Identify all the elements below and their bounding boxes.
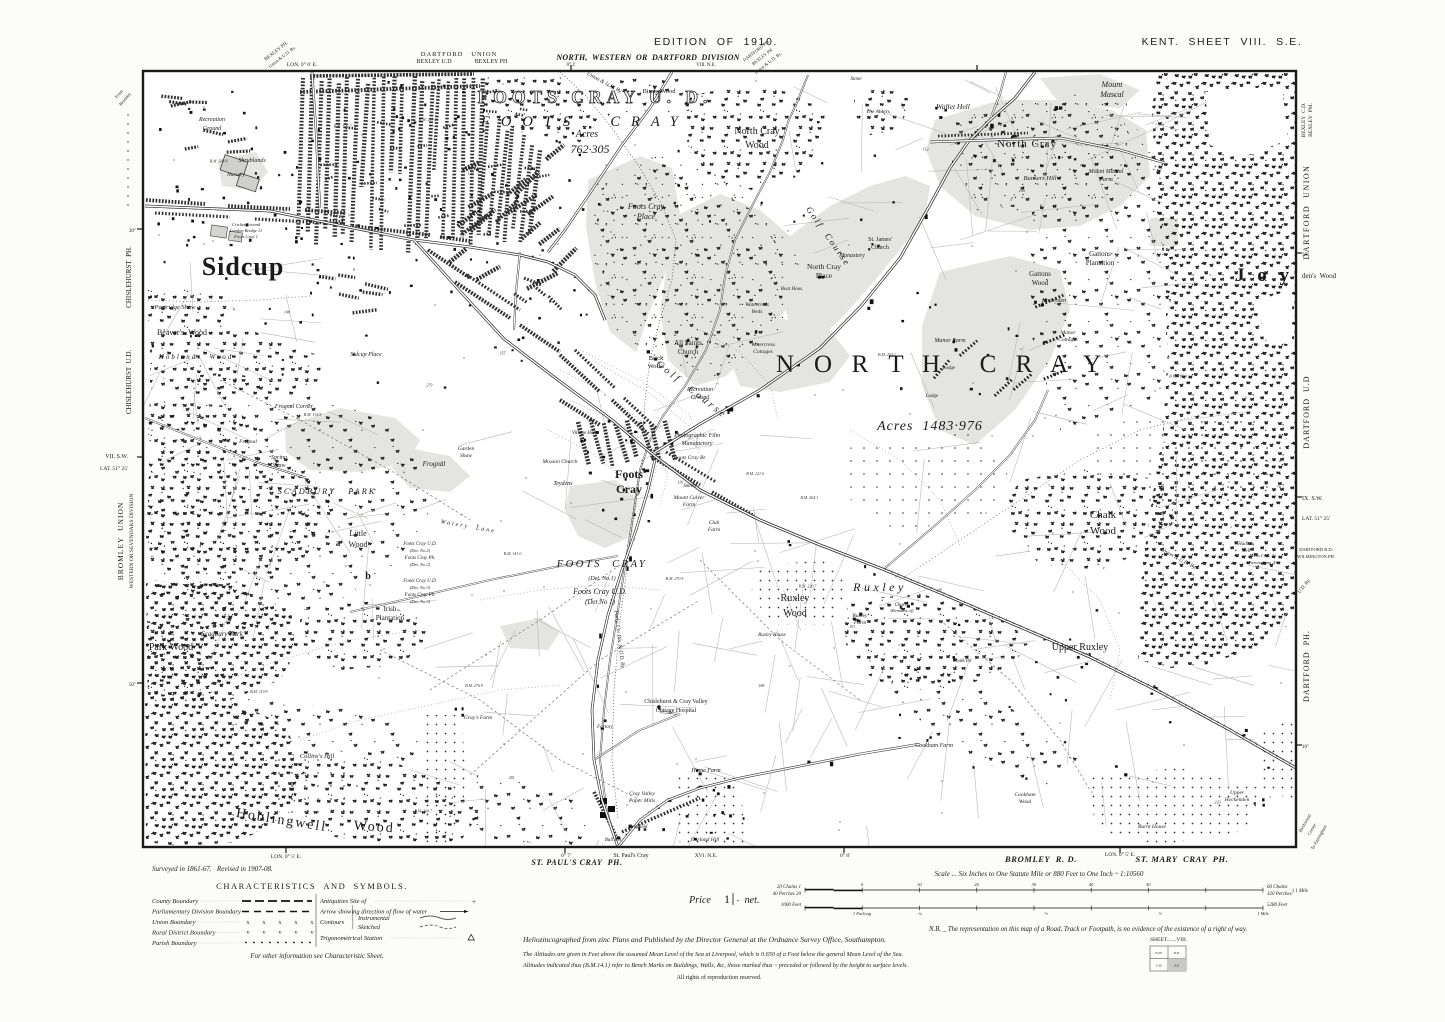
svg-text:x: x — [295, 920, 298, 926]
svg-text:Paper Mills: Paper Mills — [628, 798, 655, 804]
svg-text:Factory: Factory — [596, 725, 614, 730]
svg-text:B.M. 186·3: B.M. 186·3 — [1169, 373, 1187, 378]
svg-text:BEXLEY U.D: BEXLEY U.D — [416, 59, 452, 65]
svg-text:Y: Y — [1083, 351, 1101, 378]
svg-text:Shrublands: Shrublands — [238, 158, 266, 164]
svg-text:Boat Hous.: Boat Hous. — [781, 287, 804, 292]
svg-text:Beaver's Wood: Beaver's Wood — [157, 328, 207, 337]
svg-text:CHISLEHURST PH.: CHISLEHURST PH. — [125, 246, 133, 308]
svg-text:J o y: J o y — [1235, 265, 1293, 286]
svg-text:Brick: Brick — [649, 355, 664, 362]
svg-text:Wood: Wood — [1090, 525, 1117, 537]
svg-text:North Cray: North Cray — [734, 126, 779, 137]
svg-text:155: 155 — [499, 351, 505, 356]
svg-text:20: 20 — [974, 882, 979, 887]
svg-text:Upper: Upper — [1230, 790, 1245, 796]
svg-text:Mount: Mount — [1101, 80, 1124, 89]
svg-text:20 Chains 1: 20 Chains 1 — [777, 885, 801, 890]
svg-text:Hoblands Wood: Hoblands Wood — [158, 353, 233, 361]
svg-text:H: H — [922, 351, 940, 378]
svg-text:Instrumental: Instrumental — [357, 915, 390, 922]
svg-text:Cottages: Cottages — [753, 349, 773, 355]
svg-text:30″: 30″ — [129, 229, 136, 234]
svg-text:Stone: Stone — [850, 77, 862, 82]
svg-text:Chislehurst & Cray Valley: Chislehurst & Cray Valley — [644, 699, 707, 705]
svg-text:Foots Cray: Foots Cray — [627, 202, 665, 211]
svg-text:All rights of reproduction res: All rights of reproduction reserved. — [677, 974, 762, 981]
svg-text:Village Hall: Village Hall — [572, 431, 597, 436]
svg-text:N: N — [776, 351, 794, 378]
svg-text:Wood: Wood — [783, 608, 807, 619]
svg-text:LAT. 51° 25': LAT. 51° 25' — [100, 465, 128, 472]
svg-text:Gorland Hill: Gorland Hill — [691, 837, 720, 843]
svg-text:Farm: Farm — [682, 502, 695, 508]
svg-text:Farm: Farm — [1098, 177, 1113, 183]
svg-text:Gattons: Gattons — [1089, 250, 1111, 258]
svg-text:Upper Ruxley: Upper Ruxley — [1052, 642, 1108, 653]
svg-text:Parliamentary Division Boundar: Parliamentary Division Boundary — [151, 909, 241, 916]
svg-text:B.M. 203·1: B.M. 203·1 — [878, 352, 896, 357]
svg-text:North Cray: North Cray — [807, 262, 841, 271]
svg-text:Ground: Ground — [691, 395, 710, 401]
svg-text:Foots Cray Br.: Foots Cray Br. — [673, 455, 707, 461]
svg-text:Works: Works — [648, 363, 665, 370]
svg-text:Recreation: Recreation — [198, 117, 225, 123]
svg-text:Manufactory: Manufactory — [681, 440, 713, 447]
svg-text:B.M. 270·5: B.M. 270·5 — [666, 576, 684, 581]
svg-text:Irish: Irish — [384, 605, 397, 613]
svg-text:Nursery: Nursery — [226, 172, 245, 178]
svg-text:FOOTS CRAY: FOOTS CRAY — [480, 114, 689, 130]
svg-text:The Alders: The Alders — [866, 109, 890, 115]
svg-text:B.M. 141·0: B.M. 141·0 — [504, 551, 522, 556]
svg-text:Honeyden: Honeyden — [1041, 298, 1066, 304]
svg-text:CHARACTERISTICS AND SYMBOLS.: CHARACTERISTICS AND SYMBOLS. — [216, 881, 408, 891]
svg-text:Birch Wood: Birch Wood — [642, 88, 676, 95]
svg-text:Price: Price — [688, 895, 711, 906]
svg-text:C: C — [980, 351, 997, 378]
svg-text:Monastery: Monastery — [838, 253, 865, 259]
svg-text:0° 8': 0° 8' — [840, 852, 850, 859]
svg-text:116: 116 — [677, 479, 683, 484]
svg-text:89: 89 — [938, 588, 942, 593]
svg-text:Heliozincographed from zinc Pl: Heliozincographed from zinc Plans and Pu… — [522, 935, 886, 944]
svg-text:VIII. N.E.: VIII. N.E. — [696, 63, 715, 68]
svg-text:Lodge: Lodge — [925, 394, 939, 399]
svg-text:b: b — [365, 571, 371, 582]
svg-text:40: 40 — [1089, 882, 1094, 887]
svg-text:v: v — [263, 930, 266, 936]
svg-text:200: 200 — [1019, 188, 1025, 193]
svg-text:x: x — [279, 920, 282, 926]
svg-text:DARTFORD UNION: DARTFORD UNION — [421, 51, 497, 58]
svg-text:BEXLEY PH: BEXLEY PH — [475, 59, 508, 65]
svg-text:den's Wood: den's Wood — [1302, 272, 1337, 280]
svg-text:x: x — [311, 920, 314, 926]
svg-text:B.M. 195·7: B.M. 195·7 — [334, 124, 353, 129]
svg-text:NORTH, WESTERN OR DARTFORD: NORTH, WESTERN OR DARTFORD DIVISION — [555, 53, 740, 62]
svg-text:Park Wood: Park Wood — [149, 642, 193, 653]
svg-text:All Saints: All Saints — [674, 339, 702, 347]
svg-text:50″: 50″ — [129, 683, 136, 688]
svg-text:v: v — [295, 930, 298, 936]
svg-text:County Boundary: County Boundary — [152, 898, 198, 905]
svg-text:1 Mile: 1 Mile — [1257, 911, 1269, 916]
svg-text:Burnt House: Burnt House — [1138, 824, 1167, 830]
svg-text:Union Boundary: Union Boundary — [152, 919, 196, 926]
svg-text:B.M. 220·7: B.M. 220·7 — [799, 584, 818, 589]
svg-text:SCADBURY PARK: SCADBURY PARK — [278, 486, 377, 496]
svg-text:Spring: Spring — [271, 455, 287, 461]
svg-text:DARTFORD UNION: DARTFORD UNION — [1302, 165, 1311, 260]
svg-text:112: 112 — [923, 146, 929, 151]
svg-text:v: v — [247, 930, 250, 936]
svg-text:Church: Church — [871, 245, 889, 251]
svg-text:SHEET.......VIII.: SHEET.......VIII. — [1150, 937, 1188, 943]
svg-text:Mount Mascal: Mount Mascal — [1088, 169, 1124, 175]
svg-text:London Bridge 11: London Bridge 11 — [229, 228, 262, 233]
svg-text:BEXLEY C.D.: BEXLEY C.D. — [1301, 102, 1307, 137]
svg-text:ST. MARY CRAY PH.: ST. MARY CRAY PH. — [1136, 854, 1229, 864]
svg-text:Ruxley House: Ruxley House — [757, 633, 786, 638]
svg-text:Bunkers Hill: Bunkers Hill — [1023, 175, 1056, 182]
svg-text:Cottages: Cottages — [1058, 337, 1078, 343]
svg-text:XVI. N.E.: XVI. N.E. — [695, 853, 718, 859]
svg-text:Wood: Wood — [1019, 799, 1032, 805]
svg-text:(Det. No.3): (Det. No.3) — [410, 599, 431, 604]
svg-text:Bull Inn: Bull Inn — [605, 838, 622, 843]
svg-text:0° 2': 0° 2' — [567, 63, 576, 68]
svg-text:Rural District Boundary: Rural District Boundary — [151, 930, 216, 937]
svg-text:Crayfield: Crayfield — [629, 825, 648, 830]
svg-text:281: 281 — [509, 775, 515, 780]
svg-text:Mission Church: Mission Church — [541, 459, 577, 465]
svg-text:S.E.: S.E. — [1174, 964, 1180, 968]
svg-text:(Det. No.1): (Det. No.1) — [588, 575, 615, 582]
svg-text:v: v — [311, 930, 314, 936]
svg-text:Place: Place — [636, 212, 656, 221]
svg-text:Foots Cray Ph.: Foots Cray Ph. — [404, 556, 436, 561]
svg-text:O: O — [814, 351, 832, 378]
svg-text:FOOTS CRAY: FOOTS CRAY — [556, 559, 648, 570]
svg-text:Acres: Acres — [575, 129, 599, 140]
svg-text:S.W.: S.W. — [1156, 964, 1163, 968]
svg-text:B.M. 264·1: B.M. 264·1 — [800, 495, 818, 500]
svg-text:320 Perches: 320 Perches — [1267, 892, 1292, 897]
svg-text:Teydens: Teydens — [553, 481, 573, 487]
svg-text:Parish Boundary: Parish Boundary — [151, 940, 197, 947]
svg-text:130: 130 — [468, 171, 474, 176]
svg-text:(Det. No.2): (Det. No.2) — [410, 548, 431, 553]
svg-text:Frognal: Frognal — [238, 439, 257, 445]
svg-text:WESTERN OR SEVENOAKS DIVISION: WESTERN OR SEVENOAKS DIVISION — [129, 494, 135, 589]
svg-text:R: R — [852, 351, 869, 378]
svg-text:Sketched: Sketched — [358, 924, 381, 931]
svg-text:LAT. 51° 25': LAT. 51° 25' — [1302, 515, 1330, 522]
svg-text:Farm: Farm — [707, 527, 720, 533]
svg-text:10: 10 — [917, 882, 922, 887]
svg-text:Ground: Ground — [203, 126, 222, 132]
svg-text:x: x — [263, 920, 266, 926]
svg-text:B.M. 208·7: B.M. 208·7 — [414, 809, 433, 814]
svg-text:v: v — [279, 930, 282, 936]
svg-text:x: x — [247, 920, 250, 926]
svg-text:Surveyed in 1861-67. Revised: Surveyed in 1861-67. Revised in 1907-08. — [152, 865, 273, 873]
svg-text:Place: Place — [816, 271, 833, 280]
svg-text:Foots Cray U.D.: Foots Cray U.D. — [572, 587, 627, 596]
svg-text:B.M. 134·8: B.M. 134·8 — [304, 412, 322, 417]
svg-text:188: 188 — [758, 683, 764, 688]
svg-text:Partridge Shaw: Partridge Shaw — [154, 304, 197, 311]
svg-text:Cookham: Cookham — [1014, 792, 1035, 798]
svg-text:10″: 10″ — [1302, 745, 1309, 750]
svg-text:Gray's Farm: Gray's Farm — [464, 715, 492, 721]
svg-text:A: A — [1050, 351, 1068, 378]
svg-text:Gattons: Gattons — [1029, 270, 1051, 278]
svg-text:Garden: Garden — [458, 446, 475, 452]
svg-text:Antiquities Site of: Antiquities Site of — [319, 898, 367, 905]
svg-text:Smithy: Smithy — [683, 484, 697, 489]
svg-text:B.M. 259·2: B.M. 259·2 — [419, 117, 437, 122]
svg-text:Hockenden: Hockenden — [1224, 797, 1250, 803]
svg-text:1000 Feet: 1000 Feet — [781, 903, 802, 908]
svg-text:Ruxley: Ruxley — [852, 613, 869, 619]
svg-text:Watercress: Watercress — [745, 302, 769, 308]
svg-text:IX. S.W.: IX. S.W. — [1302, 496, 1323, 502]
svg-text:(Remains of): (Remains of) — [890, 608, 914, 613]
svg-text:Club: Club — [709, 520, 720, 526]
svg-text:50: 50 — [1146, 882, 1151, 887]
svg-text:Foots Cray U.D.: Foots Cray U.D. — [402, 542, 437, 547]
svg-text:(Det No 1): (Det No 1) — [585, 598, 616, 606]
svg-text:B.M. 121·6: B.M. 121·6 — [746, 471, 764, 476]
svg-text:Beds: Beds — [752, 309, 763, 315]
svg-text:Scale ... Six Inches to One St: Scale ... Six Inches to One Statute Mile… — [935, 870, 1144, 878]
svg-text:Manor: Manor — [1060, 330, 1077, 336]
svg-text:R: R — [1016, 351, 1033, 378]
svg-text:Church: Church — [678, 348, 699, 356]
svg-text:The Altitudes are given in Fee: The Altitudes are given in Feet above th… — [523, 951, 903, 958]
svg-text:Home Farm: Home Farm — [690, 768, 721, 774]
svg-text:Cricket Ground: Cricket Ground — [232, 222, 261, 227]
svg-text:Shaw: Shaw — [272, 463, 285, 469]
svg-text:Wallet Hell: Wallet Hell — [936, 102, 970, 111]
svg-text:+: + — [472, 898, 476, 906]
svg-text:762·305: 762·305 — [571, 142, 610, 156]
svg-text:Scadbury Park: Scadbury Park — [201, 630, 244, 638]
svg-text:LON. 0° 6' E.: LON. 0° 6' E. — [287, 61, 318, 68]
svg-text:1: 1 — [724, 892, 730, 906]
svg-text:60 Chains: 60 Chains — [1267, 885, 1287, 890]
svg-text:Wood: Wood — [745, 140, 769, 151]
svg-text:Wood: Wood — [349, 540, 368, 549]
svg-text:Contours: Contours — [320, 919, 345, 926]
svg-text:-: - — [737, 896, 740, 905]
svg-text:Wood: Wood — [1032, 279, 1049, 287]
svg-text:a: a — [336, 538, 341, 548]
svg-text:N.E.: N.E. — [1174, 951, 1181, 955]
svg-text:Plantation: Plantation — [376, 614, 405, 622]
svg-text:Ruxley: Ruxley — [781, 593, 810, 604]
svg-text:CHISLEHURST U.D.: CHISLEHURST U.D. — [125, 349, 133, 414]
svg-text:WILMINGTON PH.: WILMINGTON PH. — [1297, 554, 1335, 559]
svg-text:St. James': St. James' — [868, 237, 892, 243]
svg-text:Watercress: Watercress — [751, 342, 775, 348]
svg-text:Chalk Pd: Chalk Pd — [953, 659, 972, 664]
svg-text:FOOTS CRAY U. D.: FOOTS CRAY U. D. — [478, 87, 713, 107]
svg-text:(Det. No.3): (Det. No.3) — [410, 585, 431, 590]
svg-text:LON. 0° 5' E.: LON. 0° 5' E. — [271, 853, 302, 860]
svg-text:DARTFORD U.D: DARTFORD U.D — [1302, 375, 1311, 448]
svg-text:B.M. 276·9: B.M. 276·9 — [465, 683, 483, 688]
svg-text:Foots: Foots — [615, 467, 643, 481]
svg-text:Mount Culver: Mount Culver — [673, 495, 706, 501]
svg-text:Frognal: Frognal — [422, 460, 446, 468]
svg-text:For other information see Char: For other information see Characteristic… — [249, 952, 384, 960]
svg-text:KENT. SHEET VIII. S.E.: KENT. SHEET VIII. S.E. — [1142, 36, 1303, 48]
svg-text:Cray Valley: Cray Valley — [629, 791, 655, 797]
svg-text:1 Furlong: 1 Furlong — [853, 911, 872, 916]
svg-text:Acres 1483·976: Acres 1483·976 — [876, 419, 983, 434]
svg-text:Well: Well — [1242, 549, 1251, 554]
svg-text:Frognal Corner: Frognal Corner — [274, 404, 314, 410]
svg-text:Little: Little — [349, 529, 367, 538]
svg-text:Foots Cray 1: Foots Cray 1 — [233, 234, 258, 239]
svg-text:148: 148 — [284, 310, 290, 315]
svg-text:191: 191 — [849, 624, 855, 629]
svg-text:Wood: Wood — [353, 819, 395, 837]
svg-text:Photographic Film: Photographic Film — [673, 433, 720, 439]
svg-text:Foots Cray 3: Foots Cray 3 — [1249, 553, 1276, 558]
svg-text:B.M. 119·8: B.M. 119·8 — [250, 689, 267, 694]
svg-text:Mascal: Mascal — [1099, 90, 1124, 99]
svg-text:Foots Cray U.D.: Foots Cray U.D. — [402, 579, 437, 584]
svg-text:Chalk: Chalk — [1090, 509, 1117, 521]
svg-text:N.B. _ The representation on t: N.B. _ The representation on this map of… — [928, 926, 1247, 933]
svg-text:B.M. 334·8: B.M. 334·8 — [210, 159, 228, 164]
svg-text:Sidcup: Sidcup — [202, 252, 285, 281]
svg-text:Hadlow: Hadlow — [1237, 542, 1255, 547]
svg-text:BROMLEY R. D.: BROMLEY R. D. — [1004, 854, 1077, 864]
svg-text:DARTFORD R.D.: DARTFORD R.D. — [1299, 547, 1333, 552]
svg-text:30″: 30″ — [1302, 253, 1309, 258]
svg-text:Foots Cray Ph.: Foots Cray Ph. — [404, 593, 436, 598]
svg-text:BROMLEY UNION: BROMLEY UNION — [116, 502, 125, 581]
svg-text:279: 279 — [426, 383, 432, 388]
svg-text:Cray: Cray — [616, 482, 642, 496]
svg-text:net.: net. — [745, 895, 760, 906]
svg-text:} 1 Mile: } 1 Mile — [1292, 889, 1309, 894]
svg-text:Manor Farm: Manor Farm — [933, 338, 966, 344]
svg-text:Farningham 4: Farningham 4 — [1248, 560, 1277, 565]
svg-text:North Cray: North Cray — [997, 138, 1057, 150]
svg-text:(Det. No.2): (Det. No.2) — [410, 562, 431, 567]
svg-text:LON. 0° 5' E.: LON. 0° 5' E. — [1105, 851, 1136, 858]
svg-text:Collins's Hill: Collins's Hill — [300, 753, 335, 760]
svg-text:30: 30 — [1032, 882, 1037, 887]
svg-text:N.W.: N.W. — [1155, 951, 1162, 955]
svg-text:Plantation: Plantation — [1086, 259, 1115, 267]
svg-text:ST. PAUL'S CRAY PH.: ST. PAUL'S CRAY PH. — [531, 858, 622, 867]
svg-text:DARTFORD PH.: DARTFORD PH. — [1302, 630, 1311, 702]
svg-text:Shaw: Shaw — [460, 453, 472, 459]
svg-text:Recreation: Recreation — [686, 387, 713, 393]
svg-text:Altitudes indicated thus (B.M.: Altitudes indicated thus (B.M.14.1) refe… — [522, 962, 908, 969]
svg-text:5280 Feet: 5280 Feet — [1267, 903, 1288, 908]
svg-text:229: 229 — [1214, 799, 1220, 804]
svg-text:Trigonometrical Station: Trigonometrical Station — [320, 935, 382, 942]
svg-text:VII. S.W.: VII. S.W. — [105, 454, 128, 460]
svg-text:Lodge: Lodge — [942, 366, 956, 371]
svg-text:BEXLEY PM.: BEXLEY PM. — [1308, 102, 1314, 136]
svg-text:40 Perches 20: 40 Perches 20 — [773, 892, 802, 897]
svg-text:Cookham Farm: Cookham Farm — [915, 743, 953, 749]
svg-text:Sidcup Place: Sidcup Place — [350, 352, 382, 358]
svg-text:Cottage Hospital: Cottage Hospital — [656, 708, 697, 714]
svg-text:Ruxley: Ruxley — [852, 580, 907, 594]
